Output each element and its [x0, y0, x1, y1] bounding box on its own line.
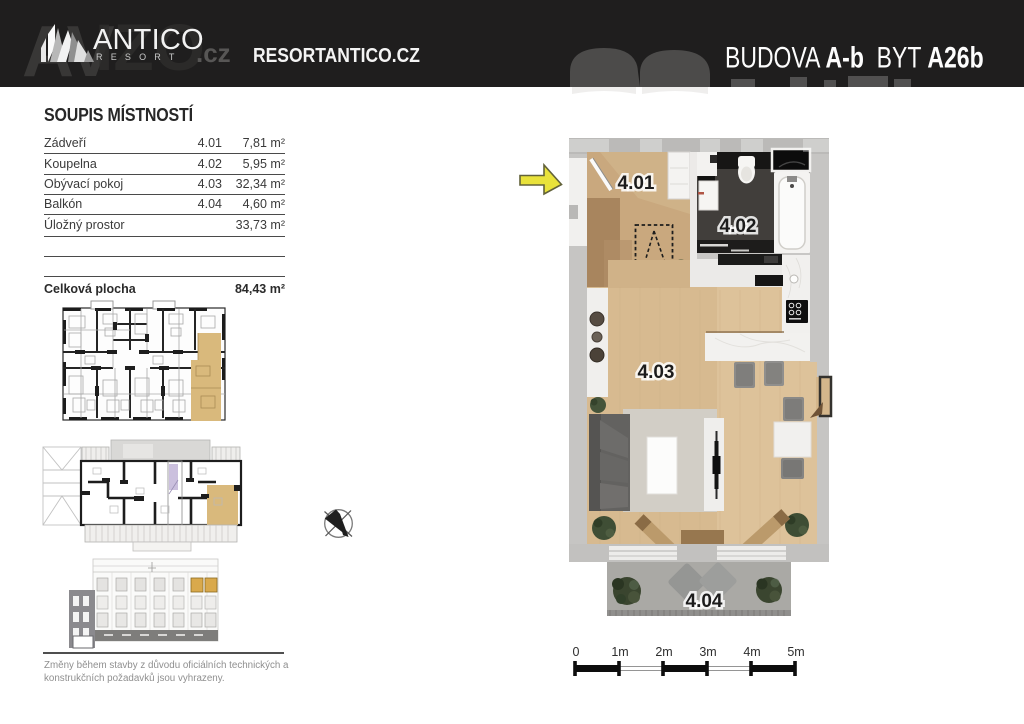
svg-text:4.01: 4.01 [618, 173, 655, 194]
svg-text:4.04: 4.04 [686, 591, 723, 612]
svg-text:4.02: 4.02 [720, 216, 757, 237]
svg-text:1m: 1m [611, 645, 628, 659]
svg-text:5m: 5m [787, 645, 804, 659]
svg-text:0: 0 [573, 645, 580, 659]
svg-text:4.03: 4.03 [638, 362, 675, 383]
svg-text:2m: 2m [655, 645, 672, 659]
svg-text:3m: 3m [699, 645, 716, 659]
svg-text:4m: 4m [743, 645, 760, 659]
